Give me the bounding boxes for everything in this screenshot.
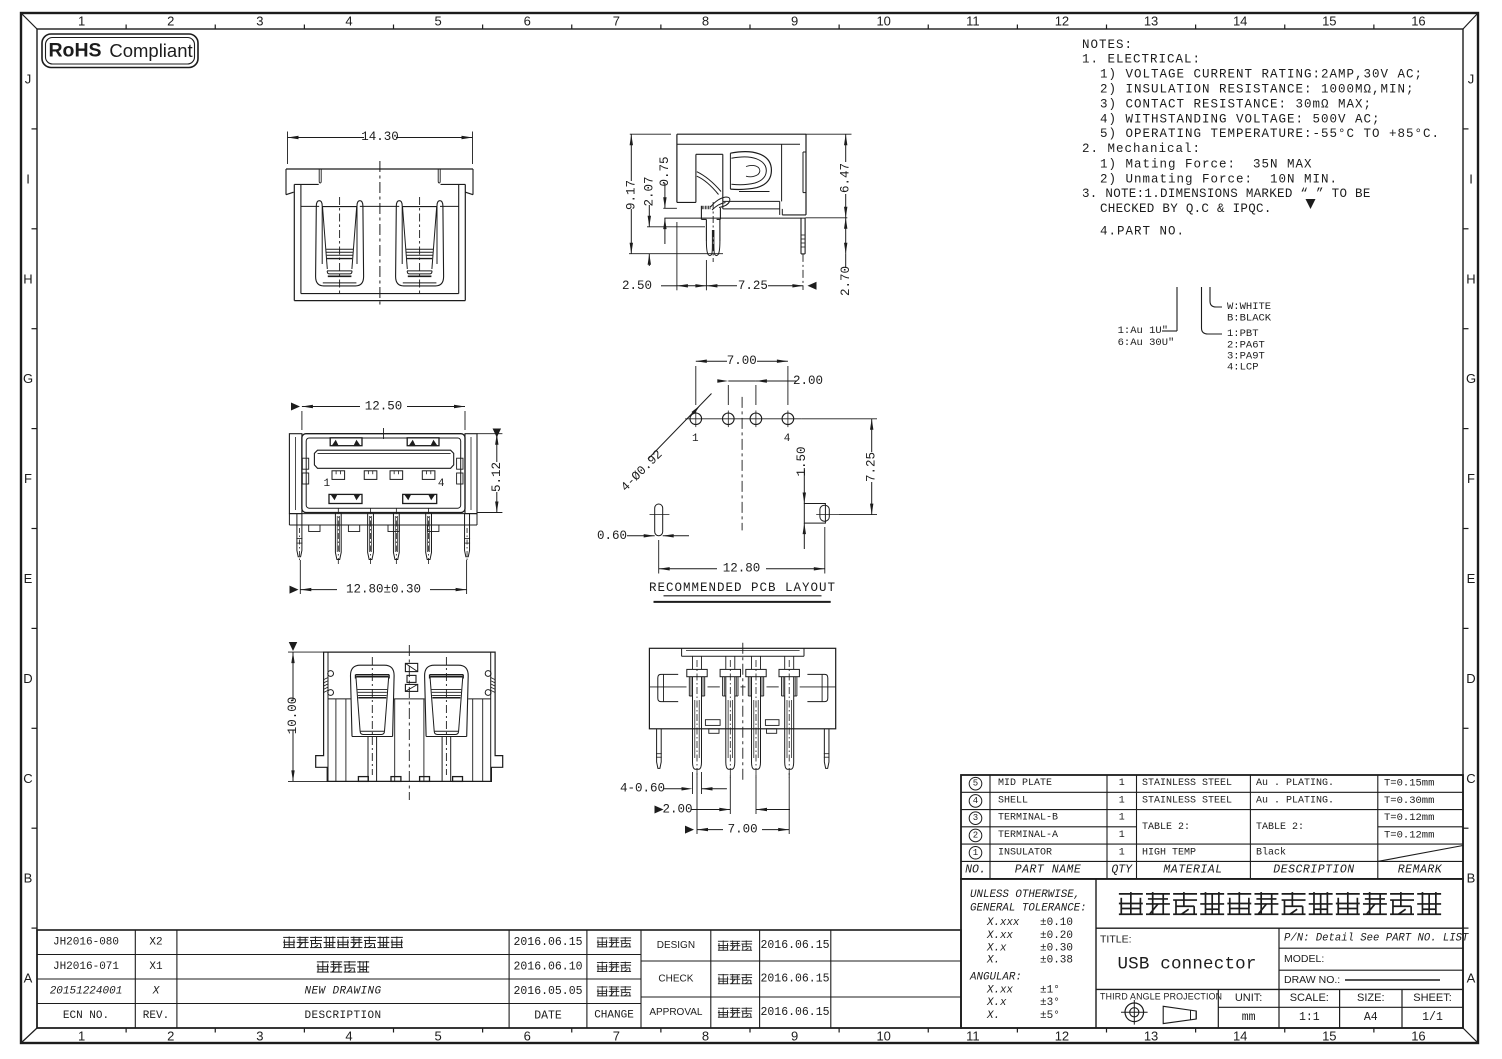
- svg-text:DESCRIPTION: DESCRIPTION: [1273, 864, 1354, 877]
- svg-text:H: H: [1466, 271, 1475, 286]
- svg-text:10.00: 10.00: [286, 697, 300, 735]
- svg-text:6.47: 6.47: [839, 163, 853, 193]
- svg-text:2.00: 2.00: [662, 802, 692, 816]
- svg-text:4: 4: [784, 433, 791, 445]
- svg-text:DATE: DATE: [534, 1009, 562, 1022]
- svg-text:X2: X2: [149, 936, 162, 948]
- svg-text:E: E: [1467, 571, 1476, 586]
- svg-text:2016.06.15: 2016.06.15: [760, 939, 829, 952]
- svg-text:8: 8: [702, 1029, 709, 1044]
- svg-text:UNLESS OTHERWISE,: UNLESS OTHERWISE,: [970, 889, 1080, 901]
- svg-text:4-0.60: 4-0.60: [620, 782, 665, 796]
- svg-text:2: 2: [167, 14, 174, 29]
- svg-text:7: 7: [613, 1029, 620, 1044]
- svg-text:B: B: [1467, 871, 1476, 886]
- svg-text:REMARK: REMARK: [1398, 864, 1443, 877]
- svg-text:JH2016-071: JH2016-071: [53, 961, 119, 973]
- svg-text:5: 5: [973, 779, 978, 789]
- svg-text:A4: A4: [1364, 1011, 1378, 1024]
- svg-text:12.80: 12.80: [723, 562, 761, 576]
- svg-text:F: F: [24, 471, 32, 486]
- svg-text:X1: X1: [149, 961, 163, 973]
- svg-text:PART NAME: PART NAME: [1015, 864, 1082, 877]
- svg-text:T=0.12mm: T=0.12mm: [1384, 829, 1434, 841]
- svg-text:ANGULAR:: ANGULAR:: [969, 972, 1022, 984]
- svg-text:D: D: [1466, 671, 1475, 686]
- svg-text:15: 15: [1322, 14, 1336, 29]
- svg-text:3. NOTE:1.DIMENSIONS MARKED “: 3. NOTE:1.DIMENSIONS MARKED “ ” TO BE: [1082, 187, 1371, 201]
- svg-text:±0.10: ±0.10: [1040, 917, 1073, 929]
- svg-text:4: 4: [345, 1029, 352, 1044]
- svg-text:±5°: ±5°: [1040, 1010, 1060, 1022]
- svg-text:1: 1: [1119, 830, 1125, 841]
- svg-text:2016.06.15: 2016.06.15: [513, 936, 582, 949]
- svg-text:7.00: 7.00: [727, 354, 757, 368]
- svg-text:APPROVAL: APPROVAL: [649, 1007, 703, 1018]
- svg-text:13: 13: [1144, 14, 1158, 29]
- svg-text:1) Mating Force: 35N MAX: 1) Mating Force: 35N MAX: [1100, 158, 1313, 172]
- svg-text:RECOMMENDED PCB LAYOUT: RECOMMENDED PCB LAYOUT: [649, 581, 836, 595]
- svg-text:DRAW NO.:: DRAW NO.:: [1284, 974, 1340, 986]
- svg-text:2016.05.05: 2016.05.05: [513, 985, 582, 998]
- svg-text:±0.38: ±0.38: [1040, 955, 1073, 967]
- svg-text:4) WITHSTANDING VOLTAGE: 500V: 4) WITHSTANDING VOLTAGE: 500V AC;: [1100, 112, 1381, 126]
- svg-text:1: 1: [78, 1029, 85, 1044]
- svg-text:±3°: ±3°: [1040, 997, 1060, 1009]
- svg-text:2) Unmating Force: 10N MIN.: 2) Unmating Force: 10N MIN.: [1100, 173, 1338, 187]
- svg-text:4: 4: [438, 478, 445, 490]
- svg-text:20151224001: 20151224001: [50, 985, 123, 997]
- svg-text:1: 1: [692, 433, 699, 445]
- svg-text:X.: X.: [986, 955, 1000, 967]
- svg-text:1:PBT: 1:PBT: [1227, 328, 1259, 340]
- svg-text:5.12: 5.12: [490, 462, 504, 492]
- svg-text:SIZE:: SIZE:: [1357, 992, 1385, 1004]
- svg-text:B:BLACK: B:BLACK: [1227, 313, 1272, 325]
- svg-text:2.70: 2.70: [839, 266, 853, 296]
- svg-text:4.PART NO.: 4.PART NO.: [1100, 225, 1185, 239]
- svg-text:3: 3: [973, 813, 978, 823]
- svg-text:2016.06.10: 2016.06.10: [513, 960, 582, 973]
- svg-text:9.17: 9.17: [624, 180, 638, 210]
- svg-text:HIGH TEMP: HIGH TEMP: [1142, 847, 1196, 858]
- svg-text:1/1: 1/1: [1422, 1011, 1443, 1024]
- svg-text:mm: mm: [1242, 1011, 1256, 1024]
- svg-text:1:1: 1:1: [1299, 1011, 1320, 1024]
- svg-text:11: 11: [966, 14, 980, 29]
- svg-text:±1°: ±1°: [1040, 985, 1060, 997]
- svg-text:MATERIAL: MATERIAL: [1163, 864, 1222, 877]
- svg-text:7: 7: [613, 14, 620, 29]
- svg-text:SHEET:: SHEET:: [1413, 992, 1452, 1004]
- svg-text:STAINLESS STEEL: STAINLESS STEEL: [1142, 795, 1232, 806]
- svg-text:Black: Black: [1256, 846, 1286, 858]
- svg-text:7.00: 7.00: [728, 822, 758, 836]
- svg-text:T=0.30mm: T=0.30mm: [1384, 795, 1434, 807]
- svg-text:X.: X.: [986, 1010, 1000, 1022]
- svg-text:14.30: 14.30: [361, 130, 399, 144]
- svg-text:USB connector: USB connector: [1117, 955, 1256, 975]
- svg-text:JH2016-080: JH2016-080: [53, 936, 119, 948]
- svg-text:I: I: [1469, 171, 1473, 186]
- svg-text:3) CONTACT RESISTANCE: 30mΩ MA: 3) CONTACT RESISTANCE: 30mΩ MAX;: [1100, 97, 1372, 111]
- svg-text:2: 2: [167, 1029, 174, 1044]
- svg-text:14: 14: [1233, 1029, 1247, 1044]
- svg-text:DESIGN: DESIGN: [657, 940, 695, 951]
- svg-text:2) INSULATION RESISTANCE: 1000: 2) INSULATION RESISTANCE: 1000MΩ,MIN;: [1100, 82, 1415, 96]
- svg-text:X.x: X.x: [986, 997, 1007, 1009]
- svg-text:INSULATOR: INSULATOR: [998, 847, 1052, 858]
- svg-text:UNIT:: UNIT:: [1235, 992, 1263, 1004]
- svg-text:CHANGE: CHANGE: [594, 1010, 634, 1022]
- svg-text:MODEL:: MODEL:: [1284, 953, 1324, 965]
- svg-text:1:Au 1U": 1:Au 1U": [1118, 325, 1168, 337]
- svg-text:11: 11: [966, 1029, 980, 1044]
- svg-text:9: 9: [791, 1029, 798, 1044]
- svg-text:7.25: 7.25: [865, 452, 879, 482]
- svg-text:2: 2: [973, 830, 978, 840]
- svg-text:SCALE:: SCALE:: [1290, 992, 1329, 1004]
- svg-text:12.50: 12.50: [365, 399, 403, 413]
- svg-text:STAINLESS STEEL: STAINLESS STEEL: [1142, 778, 1232, 789]
- svg-text:NOTES:: NOTES:: [1082, 38, 1133, 52]
- svg-text:T=0.15mm: T=0.15mm: [1384, 778, 1434, 790]
- svg-text:16: 16: [1411, 1029, 1425, 1044]
- svg-text:X.xx: X.xx: [986, 930, 1013, 942]
- svg-text:J: J: [25, 71, 32, 86]
- svg-text:6:Au 30U": 6:Au 30U": [1118, 337, 1175, 349]
- svg-text:1: 1: [323, 478, 330, 490]
- svg-text:1: 1: [1119, 795, 1125, 806]
- svg-text:TITLE:: TITLE:: [1100, 934, 1132, 946]
- svg-text:G: G: [23, 371, 33, 386]
- svg-text:7.25: 7.25: [738, 279, 768, 293]
- svg-text:TERMINAL-A: TERMINAL-A: [998, 830, 1058, 841]
- svg-text:A: A: [24, 971, 33, 986]
- svg-text:H: H: [23, 271, 32, 286]
- svg-text:C: C: [23, 771, 32, 786]
- svg-text:1: 1: [78, 14, 85, 29]
- svg-text:3: 3: [256, 1029, 263, 1044]
- svg-text:10: 10: [876, 14, 890, 29]
- svg-text:T=0.12mm: T=0.12mm: [1384, 812, 1434, 824]
- svg-text:6: 6: [524, 14, 531, 29]
- svg-text:CHECK: CHECK: [658, 974, 693, 985]
- svg-text:15: 15: [1322, 1029, 1336, 1044]
- svg-text:G: G: [1466, 371, 1476, 386]
- svg-text:1: 1: [1119, 813, 1125, 824]
- svg-text:8: 8: [702, 14, 709, 29]
- svg-text:1.50: 1.50: [795, 446, 809, 476]
- svg-text:P/N: Detail See PART NO. LIST: P/N: Detail See PART NO. LIST: [1284, 933, 1469, 945]
- svg-text:12: 12: [1055, 1029, 1069, 1044]
- svg-text:3: 3: [256, 14, 263, 29]
- svg-text:GENERAL TOLERANCE:: GENERAL TOLERANCE:: [970, 903, 1087, 915]
- svg-text:QTY: QTY: [1111, 864, 1133, 877]
- svg-text:J: J: [1468, 71, 1475, 86]
- svg-text:±0.20: ±0.20: [1040, 930, 1073, 942]
- svg-text:Au . PLATING.: Au . PLATING.: [1256, 795, 1334, 806]
- svg-text:A: A: [1467, 971, 1476, 986]
- svg-text:SHELL: SHELL: [998, 795, 1028, 806]
- svg-text:4: 4: [345, 14, 352, 29]
- svg-text:F: F: [1467, 471, 1475, 486]
- svg-text:TABLE 2:: TABLE 2:: [1256, 822, 1304, 833]
- svg-text:5: 5: [434, 1029, 441, 1044]
- svg-text:5: 5: [434, 14, 441, 29]
- svg-text:±0.30: ±0.30: [1040, 943, 1073, 955]
- svg-text:TERMINAL-B: TERMINAL-B: [998, 813, 1058, 824]
- svg-text:1: 1: [1119, 847, 1125, 858]
- svg-text:TABLE 2:: TABLE 2:: [1142, 822, 1190, 833]
- svg-text:REV.: REV.: [143, 1010, 169, 1022]
- svg-text:10: 10: [876, 1029, 890, 1044]
- svg-text:14: 14: [1233, 14, 1247, 29]
- svg-text:CHECKED BY Q.C & IPQC.: CHECKED BY Q.C & IPQC.: [1100, 202, 1272, 216]
- svg-text:12: 12: [1055, 14, 1069, 29]
- svg-text:Au . PLATING.: Au . PLATING.: [1256, 778, 1334, 789]
- svg-text:2016.06.15: 2016.06.15: [760, 1006, 829, 1019]
- svg-text:1: 1: [973, 848, 978, 858]
- svg-text:DESCRIPTION: DESCRIPTION: [304, 1010, 381, 1022]
- svg-text:X.x: X.x: [986, 943, 1007, 955]
- svg-text:0.60: 0.60: [597, 529, 627, 543]
- svg-text:13: 13: [1144, 1029, 1158, 1044]
- svg-text:9: 9: [791, 14, 798, 29]
- svg-text:X.xx: X.xx: [986, 985, 1013, 997]
- svg-text:5) OPERATING TEMPERATURE:-55°C: 5) OPERATING TEMPERATURE:-55°C TO +85°C.: [1100, 127, 1440, 141]
- svg-text:Compliant: Compliant: [109, 40, 192, 61]
- svg-text:16: 16: [1411, 14, 1425, 29]
- svg-text:C: C: [1466, 771, 1475, 786]
- svg-text:12.80±0.30: 12.80±0.30: [346, 582, 421, 596]
- svg-text:1. ELECTRICAL:: 1. ELECTRICAL:: [1082, 53, 1201, 67]
- svg-text:2.00: 2.00: [793, 374, 823, 388]
- svg-text:ECN NO.: ECN NO.: [63, 1010, 109, 1022]
- svg-text:NEW DRAWING: NEW DRAWING: [304, 985, 381, 997]
- svg-text:2016.06.15: 2016.06.15: [760, 973, 829, 986]
- svg-text:1) VOLTAGE CURRENT RATING:2AMP: 1) VOLTAGE CURRENT RATING:2AMP,30V AC;: [1100, 68, 1423, 82]
- svg-text:D: D: [23, 671, 32, 686]
- svg-text:2. Mechanical:: 2. Mechanical:: [1082, 142, 1201, 156]
- svg-text:2.07: 2.07: [642, 176, 656, 206]
- svg-text:MID PLATE: MID PLATE: [998, 778, 1052, 789]
- svg-text:B: B: [24, 871, 33, 886]
- svg-text:4: 4: [973, 796, 978, 806]
- svg-text:0.75: 0.75: [658, 156, 672, 186]
- svg-text:W:WHITE: W:WHITE: [1227, 301, 1271, 313]
- svg-text:I: I: [26, 171, 30, 186]
- svg-text:1: 1: [1119, 778, 1125, 789]
- svg-text:2.50: 2.50: [622, 279, 652, 293]
- svg-text:THIRD ANGLE PROJECTION: THIRD ANGLE PROJECTION: [1100, 992, 1222, 1002]
- svg-text:RoHS: RoHS: [48, 40, 101, 62]
- svg-text:4:LCP: 4:LCP: [1227, 362, 1259, 374]
- svg-text:X.xxx: X.xxx: [986, 917, 1020, 929]
- svg-text:6: 6: [524, 1029, 531, 1044]
- svg-text:E: E: [24, 571, 33, 586]
- svg-text:NO.: NO.: [965, 864, 986, 877]
